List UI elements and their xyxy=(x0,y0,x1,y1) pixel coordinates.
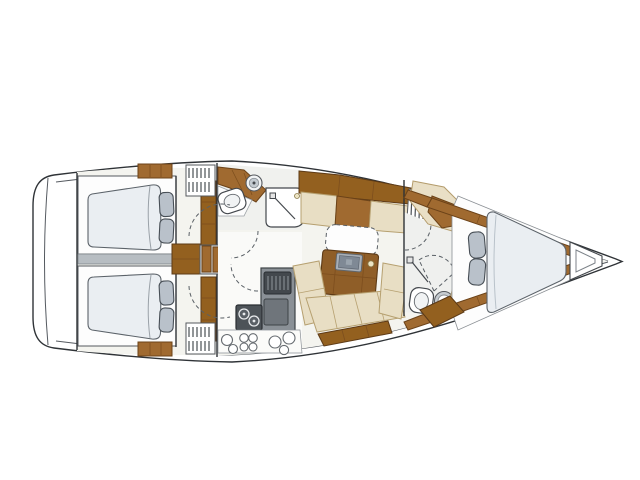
pillow xyxy=(159,308,174,333)
settee-mid-cabinet xyxy=(335,196,371,230)
pillow xyxy=(468,231,486,258)
settee-cushion xyxy=(301,192,337,227)
side-settee xyxy=(299,171,411,233)
step-tread xyxy=(202,246,211,272)
settee-cushion xyxy=(369,201,408,233)
louvered-locker-top xyxy=(186,165,215,196)
transom-inner-line xyxy=(45,178,49,345)
louvered-locker-bottom xyxy=(186,323,215,354)
pillow xyxy=(468,258,486,285)
table-knob xyxy=(368,261,375,268)
entry-wood-trim xyxy=(138,342,172,356)
saloon-table xyxy=(319,224,381,299)
boat-floorplan-canvas xyxy=(0,0,640,480)
pillow xyxy=(159,192,174,217)
knob xyxy=(295,194,300,199)
aft-head xyxy=(216,164,304,230)
engine-compartment-divider xyxy=(78,254,175,264)
yacht-floorplan xyxy=(0,0,640,480)
shower-mixer xyxy=(270,193,276,199)
galley xyxy=(218,232,302,355)
entry-wood-trim xyxy=(138,164,172,178)
fridge xyxy=(264,299,288,325)
pillow xyxy=(159,219,174,244)
pillow xyxy=(159,281,174,306)
